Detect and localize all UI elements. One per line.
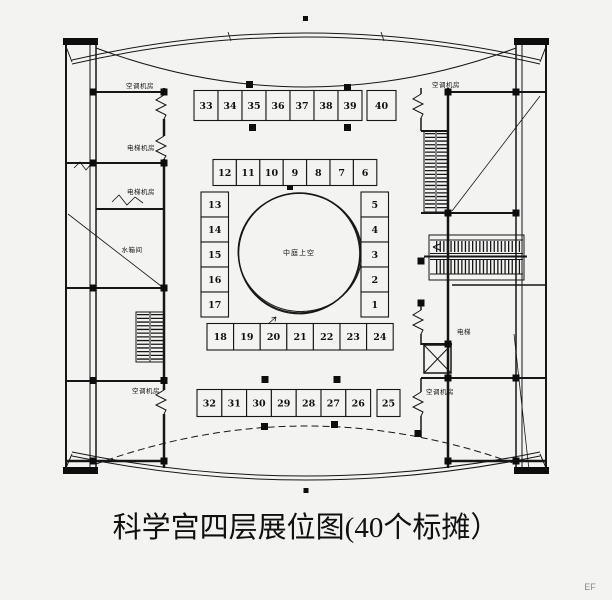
booth-row-upper-middle: 12 11 10 9 8 7 6 bbox=[213, 160, 377, 186]
booth-number: 9 bbox=[292, 168, 299, 179]
room-label-left-ac-bottom: 空调机房 bbox=[132, 386, 160, 395]
booth-number: 19 bbox=[240, 332, 254, 343]
booth-number: 11 bbox=[241, 168, 254, 179]
booth-number: 23 bbox=[347, 332, 360, 343]
booth-number: 21 bbox=[293, 332, 306, 343]
booth-number: 22 bbox=[320, 332, 333, 343]
booth-number: 26 bbox=[352, 399, 366, 410]
room-label-left-elevator-machine-upper: 电梯机房 bbox=[127, 143, 155, 152]
booth-number: 17 bbox=[208, 300, 221, 311]
booth-number: 40 bbox=[375, 101, 389, 112]
atrium-label: 中庭上空 bbox=[283, 248, 315, 257]
booth-number: 4 bbox=[371, 225, 378, 236]
booth-number: 13 bbox=[208, 200, 221, 211]
booth-row-lower-middle: 18 19 20 21 22 23 24 bbox=[207, 324, 393, 351]
floor-plan-canvas: 中庭上空 33 34 35 36 37 38 39 40 12 11 10 9 … bbox=[0, 0, 612, 600]
bottom-canopy-arcs bbox=[65, 426, 547, 493]
booth-number: 30 bbox=[252, 399, 266, 410]
corner-mark: EF bbox=[584, 582, 596, 592]
booth-number: 14 bbox=[208, 225, 222, 236]
booth-number: 31 bbox=[228, 399, 241, 410]
room-label-left-elevator-machine-lower: 电梯机房 bbox=[127, 187, 155, 196]
booth-number: 35 bbox=[247, 101, 260, 112]
booth-number: 25 bbox=[382, 399, 395, 410]
right-staircase bbox=[424, 131, 448, 212]
booth-number: 6 bbox=[362, 168, 369, 179]
booth-number: 33 bbox=[199, 101, 212, 112]
left-staircase bbox=[136, 312, 164, 362]
booth-number: 12 bbox=[218, 168, 231, 179]
top-canopy-arcs bbox=[65, 16, 547, 87]
booth-number: 34 bbox=[223, 101, 237, 112]
booth-number: 37 bbox=[295, 101, 308, 112]
booth-number: 5 bbox=[371, 200, 378, 211]
room-label-right-ac-bottom: 空调机房 bbox=[426, 387, 454, 396]
booth-number: 27 bbox=[327, 399, 340, 410]
booth-number: 29 bbox=[277, 399, 291, 410]
booth-number: 28 bbox=[302, 399, 316, 410]
room-label-right-elevator: 电梯 bbox=[457, 327, 471, 336]
atrium-circle: 中庭上空 bbox=[230, 185, 369, 320]
booth-number: 39 bbox=[343, 101, 357, 112]
booth-row-bottom: 32 31 30 29 28 27 26 25 bbox=[197, 390, 400, 417]
room-label-left-ac-top: 空调机房 bbox=[126, 81, 154, 90]
booth-number: 10 bbox=[265, 168, 279, 179]
booth-number: 18 bbox=[214, 332, 228, 343]
booth-number: 20 bbox=[267, 332, 281, 343]
booth-number: 1 bbox=[371, 300, 378, 311]
booth-number: 2 bbox=[371, 275, 378, 286]
booth-number: 38 bbox=[319, 101, 333, 112]
plan-title: 科学宫四层展位图(40个标摊） bbox=[113, 511, 500, 544]
booth-column-right: 5 4 3 2 1 bbox=[361, 192, 389, 317]
booth-column-left: 13 14 15 16 17 bbox=[201, 192, 229, 317]
booth-number: 32 bbox=[203, 399, 216, 410]
booth-number: 15 bbox=[208, 250, 221, 261]
left-wing-walls bbox=[63, 38, 165, 474]
booth-number: 7 bbox=[338, 168, 345, 179]
booth-number: 3 bbox=[371, 250, 378, 261]
booth-number: 24 bbox=[373, 332, 387, 343]
booth-number: 16 bbox=[208, 275, 222, 286]
booth-number: 8 bbox=[315, 168, 322, 179]
room-label-right-ac-top: 空调机房 bbox=[432, 80, 460, 89]
escalator bbox=[424, 235, 527, 280]
booth-row-top: 33 34 35 36 37 38 39 40 bbox=[194, 91, 396, 121]
room-label-left-water-tank: 水箱间 bbox=[122, 245, 143, 254]
booth-number: 36 bbox=[271, 101, 285, 112]
